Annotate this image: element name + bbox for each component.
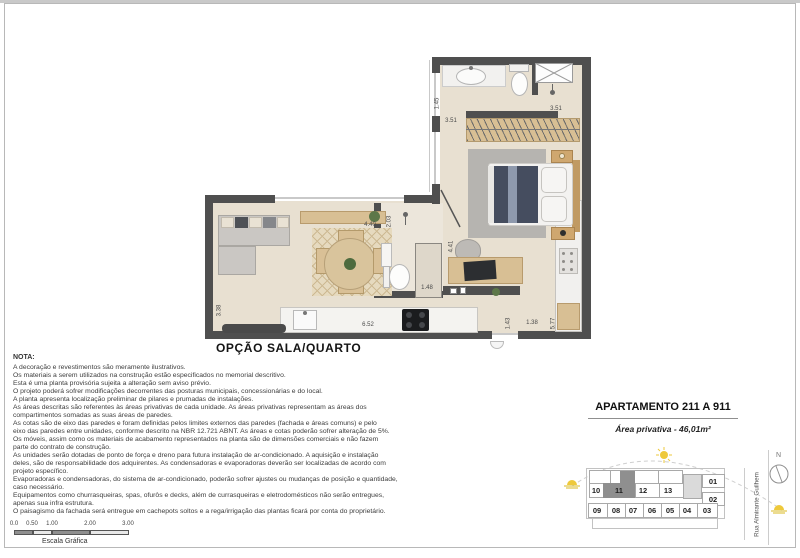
- unit-number: 06: [644, 506, 660, 515]
- shelf-frame-icon: [460, 287, 466, 294]
- plant-icon: [369, 211, 380, 222]
- note-line: compartimentos somadas as suas áreas de …: [13, 412, 533, 420]
- window-living-top: [275, 197, 404, 199]
- toilet-bowl: [389, 264, 410, 290]
- floorplan-page: 1.45 3.51 3.51 4.40 2.03 4.41 1.48 3.38 …: [0, 0, 800, 558]
- dim-label: 1.45: [435, 91, 442, 117]
- strip-divider: [610, 470, 611, 484]
- table-plant-icon: [344, 258, 356, 270]
- dim-label: 4.41: [449, 234, 456, 260]
- scale-tick: 2.00: [81, 521, 99, 527]
- toilet-bowl: [511, 72, 528, 96]
- scale-tick: 3.00: [119, 521, 137, 527]
- unit-number-highlighted: 11: [611, 486, 627, 495]
- knob-icon: [570, 268, 573, 271]
- street-label: Rua Almirante Guilhem: [754, 460, 761, 550]
- street-line: [744, 468, 745, 540]
- scale-tick: 1.00: [43, 521, 61, 527]
- sofa-pillow: [263, 217, 276, 228]
- strip-divider: [658, 470, 659, 484]
- pillow: [541, 167, 567, 193]
- note-line: Esta é uma planta provisória sujeita a a…: [13, 380, 533, 388]
- bed-sheet-fold: [488, 166, 494, 223]
- unit-number: 13: [660, 486, 676, 495]
- headboard: [572, 160, 580, 232]
- unit-number: 09: [589, 506, 605, 515]
- apartment-title: APARTAMENTO 211 A 911: [575, 401, 751, 413]
- scale-segment: [52, 530, 90, 535]
- note-line: Os materiais a serem utilizados na const…: [13, 372, 533, 380]
- note-line: A decoração e revestimentos são merament…: [13, 364, 533, 372]
- row-divider: [697, 503, 698, 518]
- private-area-label: Área privativa - 46,01m²: [575, 424, 751, 434]
- keyplan-top-strip: [589, 470, 683, 484]
- dim-label: 4.40: [357, 222, 383, 229]
- bath-vanity: [381, 243, 392, 267]
- highlighted-unit-11-upper: [620, 471, 635, 483]
- burner-icon: [406, 322, 412, 328]
- unit-number: 10: [588, 486, 604, 495]
- sofa-pillow: [235, 217, 248, 228]
- knob-icon: [562, 268, 565, 271]
- note-line: apenas sua infra estrutura.: [13, 500, 533, 508]
- dim-label: 5.77: [551, 311, 558, 337]
- note-line: eixo das paredes entre unidades, conform…: [13, 428, 533, 436]
- knob-icon: [562, 252, 565, 255]
- note-line: As áreas descritas são referentes às áre…: [13, 404, 533, 412]
- shelf-frame-icon: [450, 288, 457, 294]
- sofa-chaise: [218, 246, 256, 275]
- title-rule: [588, 418, 738, 419]
- faucet-icon: [303, 311, 307, 315]
- dim-label: 1.38: [519, 320, 545, 327]
- lamp-icon: [559, 153, 565, 159]
- shower-head-arm: [405, 216, 406, 225]
- scale-tick: 0.0: [5, 521, 23, 527]
- dim-label: 3.38: [217, 298, 224, 324]
- knob-icon: [562, 260, 565, 263]
- scale-segment: [33, 530, 52, 535]
- wall-living-left: [205, 195, 213, 339]
- knob-icon: [570, 260, 573, 263]
- note-line: O paisagismo da fachada será entregue em…: [13, 508, 533, 516]
- scale-segment: [14, 530, 33, 535]
- dim-label: 3.51: [438, 118, 464, 125]
- dim-label: 2.03: [387, 209, 394, 235]
- unit-number: 01: [705, 477, 721, 486]
- sunrise-icon: [564, 476, 580, 490]
- window-left-lower: [434, 132, 436, 184]
- burner-icon: [406, 312, 412, 318]
- dim-label: 6.52: [355, 322, 381, 329]
- plan-option-label: OPÇÃO SALA/QUARTO: [216, 341, 361, 355]
- lower-slab-outline: [592, 518, 718, 529]
- unit-number: 04: [679, 506, 695, 515]
- note-line: As unidades serão dotadas de ponto de fo…: [13, 452, 533, 460]
- sofa-pillow: [249, 217, 262, 228]
- dark-mat: [222, 324, 286, 333]
- unit-number: 05: [662, 506, 678, 515]
- wall-right: [582, 57, 591, 339]
- wall-left-upper-a: [432, 57, 440, 73]
- shelf-plant-icon: [492, 288, 500, 296]
- unit-number: 07: [625, 506, 641, 515]
- scale-caption: Escala Gráfica: [42, 538, 88, 545]
- laptop-icon: [463, 260, 496, 281]
- unit-number: 02: [705, 495, 721, 504]
- vanity-sink: [456, 68, 486, 85]
- dimension-line: [429, 60, 430, 192]
- shower-x-icon: [535, 63, 573, 83]
- wall-living-top-a: [205, 195, 275, 203]
- compass-north-label: N: [776, 452, 781, 459]
- burner-icon: [419, 312, 425, 318]
- sofa-pillow: [277, 217, 289, 228]
- knob-icon: [570, 252, 573, 255]
- note-line: projeto específico.: [13, 468, 533, 476]
- sunset-icon: [771, 501, 787, 515]
- scale-segment: [90, 530, 129, 535]
- note-line: deles, são de responsabilidade dos adqui…: [13, 460, 533, 468]
- bed-runner: [508, 166, 517, 223]
- toilet-tank: [509, 64, 529, 72]
- closet-rod: [466, 129, 580, 130]
- unit-number: 12: [635, 486, 651, 495]
- note-line: A planta apresenta localização prelimina…: [13, 396, 533, 404]
- note-line: Evaporadoras e condensadoras, do sistema…: [13, 476, 533, 484]
- floor-plan: 1.45 3.51 3.51 4.40 2.03 4.41 1.48 3.38 …: [0, 0, 800, 360]
- shower-head-arm: [552, 84, 553, 91]
- note-line: O projeto poderá sofrer modificações dec…: [13, 388, 533, 396]
- scale-tick: 0.50: [23, 521, 41, 527]
- faucet-icon: [469, 66, 473, 70]
- dim-label: 1.43: [506, 311, 513, 337]
- notes-heading: NOTA:: [13, 354, 35, 361]
- dim-label: 3.51: [543, 106, 569, 113]
- dim-label: 1.48: [414, 285, 440, 292]
- kitchen-base-cabinet: [557, 303, 580, 330]
- sun-icon: [654, 447, 674, 463]
- burner-icon: [419, 322, 425, 328]
- unit-number: 03: [699, 506, 715, 515]
- entry-door-icon: [432, 185, 472, 235]
- closet: [466, 118, 580, 142]
- lamp-icon: [560, 230, 566, 236]
- sofa-pillow: [221, 217, 234, 228]
- note-line: parte do contrato de construção.: [13, 444, 533, 452]
- unit-number: 08: [608, 506, 624, 515]
- note-line: Os móveis, assim como os materiais de ac…: [13, 436, 533, 444]
- note-line: Equipamentos como churrasqueiras, spas, …: [13, 492, 533, 500]
- note-line: As cotas são de eixo das paredes e foram…: [13, 420, 533, 428]
- note-line: caso necessário.: [13, 484, 533, 492]
- keyplan-core-block: [683, 474, 702, 499]
- balcony-marker: [490, 341, 504, 349]
- pillow: [541, 196, 567, 222]
